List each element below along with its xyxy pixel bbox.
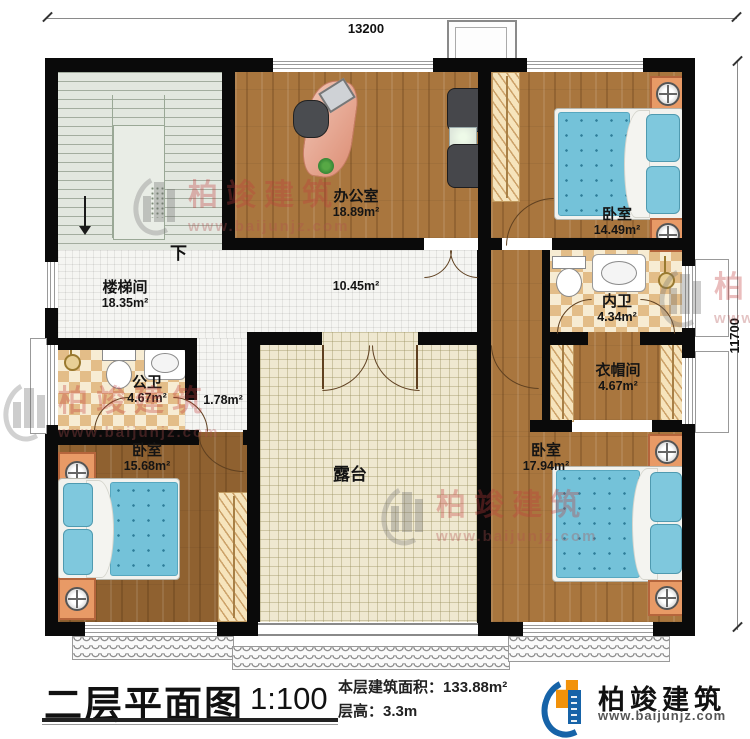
wall-segment — [478, 58, 491, 250]
pillow — [63, 529, 93, 575]
drawing-scale: 1:100 — [250, 681, 328, 717]
lamp-icon — [655, 440, 679, 464]
dimension-height-label: 11700 — [727, 318, 742, 353]
stair-direction-arrow — [84, 196, 86, 228]
bed-mattress — [558, 112, 630, 216]
nightstand — [648, 434, 686, 470]
wardrobe-rail — [562, 340, 564, 420]
dimension-tick — [42, 12, 53, 23]
pillow — [63, 483, 93, 527]
room-label-public-bathroom: 公卫 4.67m² — [127, 375, 167, 405]
nightstand — [650, 76, 686, 112]
room-label-cloakroom: 衣帽间 4.67m² — [595, 363, 640, 393]
bedroom-bottom-right-floor — [491, 250, 542, 432]
wall-segment — [247, 332, 260, 622]
wall-segment — [682, 58, 695, 636]
floor-area-info: 本层建筑面积：133.88m² — [338, 676, 507, 697]
room-label-hallway: 10.45m² — [333, 280, 380, 294]
bed-mattress — [110, 482, 178, 576]
brand-website: www.baijunjz.com — [598, 708, 726, 723]
wardrobe — [492, 72, 520, 202]
title-underline — [42, 724, 338, 725]
pillow — [646, 114, 680, 162]
office-chair — [293, 100, 329, 138]
room-label-terrace: 露台 — [333, 466, 367, 485]
lamp-icon — [65, 587, 89, 611]
window — [85, 622, 217, 636]
stair-direction-arrowhead — [79, 226, 91, 235]
stair-break-mark — [150, 186, 164, 218]
title-underline — [42, 718, 338, 722]
wardrobe-rail — [233, 496, 235, 619]
wall-segment — [222, 238, 424, 250]
nightstand — [648, 580, 686, 616]
floor-height-info: 层高：3.3m — [338, 700, 417, 721]
wall-segment — [45, 430, 199, 445]
window — [527, 58, 643, 72]
wall-segment — [185, 338, 197, 400]
door-leaf — [322, 345, 324, 389]
wall-segment — [260, 332, 322, 345]
roof-awning — [508, 636, 670, 662]
dimension-line-top — [47, 18, 737, 19]
wall-segment — [552, 238, 695, 250]
room-label-bedroom-top-right: 卧室 14.49m² — [594, 207, 641, 237]
room-label-stairwell: 楼梯间 18.35m² — [102, 280, 149, 310]
pillow — [646, 166, 680, 214]
wardrobe-rail — [672, 340, 674, 420]
wall-segment — [530, 420, 572, 432]
room-label-inner-bathroom: 内卫 4.34m² — [597, 294, 637, 324]
pillow — [650, 524, 682, 574]
wardrobe — [660, 337, 684, 422]
window-sill — [695, 259, 729, 337]
window-sill — [695, 351, 729, 433]
stair-stringer-line — [164, 95, 165, 238]
room-label-bedroom-bottom-right: 卧室 17.94m² — [523, 443, 570, 473]
stair-down-label: 下 — [170, 239, 187, 264]
bed-mattress — [556, 470, 640, 578]
stair-void — [113, 125, 165, 240]
wall-segment — [45, 338, 197, 350]
window — [682, 358, 695, 424]
wardrobe — [550, 337, 574, 422]
sink-basin — [151, 353, 179, 373]
wardrobe-rail — [506, 76, 508, 199]
floor-plan-canvas: 13200 11700 — [0, 0, 750, 739]
roof-awning — [72, 636, 234, 660]
window — [44, 345, 58, 425]
wardrobe — [218, 492, 248, 622]
brand-logo-icon — [544, 676, 594, 730]
window — [44, 262, 58, 308]
wall-segment — [477, 250, 491, 622]
terrace-railing — [258, 623, 478, 636]
wall-segment — [418, 332, 477, 345]
sink — [592, 254, 646, 292]
potted-plant — [318, 158, 334, 174]
terrace-floor — [260, 332, 477, 622]
stair-stringer-line — [112, 95, 113, 238]
lamp-icon — [655, 586, 679, 610]
window — [523, 622, 653, 636]
sink-basin — [601, 261, 637, 285]
window — [682, 266, 695, 328]
nightstand — [58, 578, 96, 620]
shower-head-icon — [658, 272, 675, 289]
door-leaf — [416, 345, 418, 389]
dimension-width-label: 13200 — [330, 21, 402, 36]
roof-awning — [232, 646, 510, 670]
dimension-tick — [731, 12, 742, 23]
wall-segment — [222, 58, 235, 250]
chimney-inner — [455, 27, 507, 61]
toilet-bowl — [556, 268, 582, 297]
window — [273, 58, 433, 72]
room-label-office: 办公室 18.89m² — [333, 189, 380, 219]
shower-head-icon — [64, 354, 81, 371]
pillow — [650, 472, 682, 522]
lamp-icon — [656, 82, 680, 106]
room-label-bedroom-bottom-left: 卧室 15.68m² — [124, 443, 171, 473]
wall-segment — [491, 238, 502, 250]
room-label-corridor: 1.78m² — [203, 394, 243, 408]
